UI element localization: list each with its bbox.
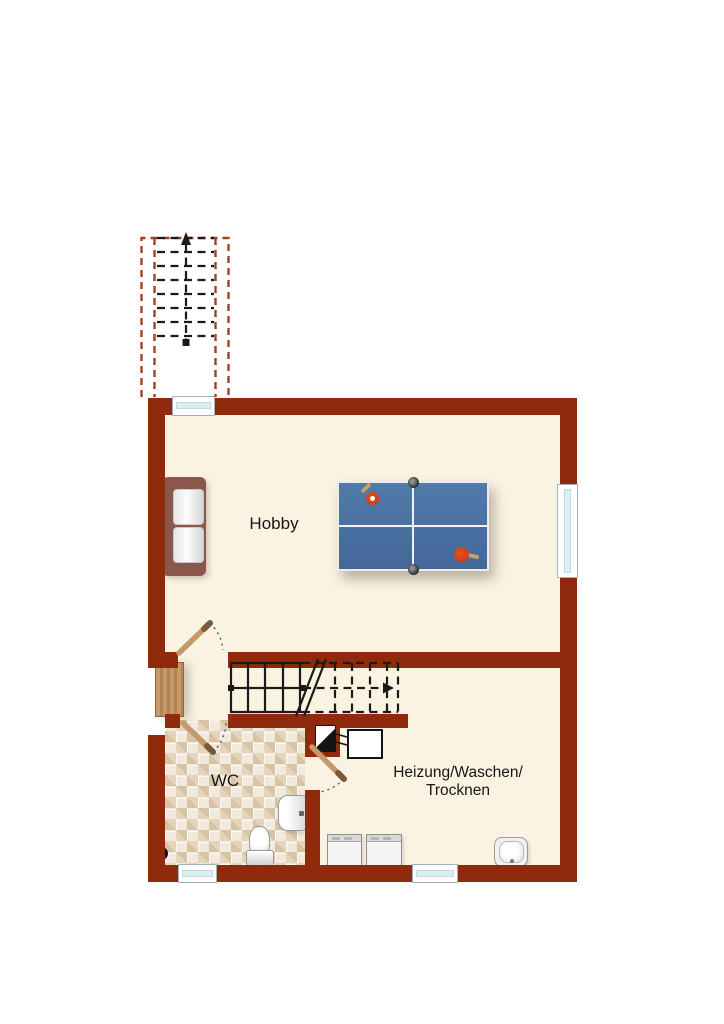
wall-wc-north-stub [165, 714, 180, 728]
window-glass [182, 870, 213, 877]
washer-knob-icon [344, 837, 352, 840]
wall-west-upper [148, 415, 165, 652]
window-glass [416, 870, 454, 877]
wall-west-lower [148, 735, 165, 865]
wc-tiled-floor [165, 720, 305, 865]
heating-boiler [347, 729, 383, 759]
washer-knob-icon [371, 837, 379, 840]
room-label-utility-line2: Trocknen [393, 782, 523, 800]
stair-start-marker [183, 339, 190, 346]
sofa-cushion [173, 527, 204, 563]
ball-icon [370, 496, 375, 501]
stair-up-arrow-icon [181, 232, 191, 245]
wall-east [560, 415, 577, 865]
sofa-cushion [173, 489, 204, 525]
floor-plan-canvas: Hobby WC Heizung/Waschen/ Trocknen [0, 0, 724, 1024]
washer-knob-icon [332, 837, 340, 840]
door-glass [176, 402, 211, 409]
window-utility [412, 864, 458, 883]
cellar-exterior-door [155, 662, 184, 717]
exterior-staircase [142, 232, 229, 397]
washer-control-panel [367, 835, 401, 842]
room-label-wc: WC [211, 771, 239, 791]
washer-knob-icon [383, 837, 391, 840]
utility-sink [494, 837, 528, 867]
paddle-icon [454, 547, 469, 562]
entry-door-north [172, 396, 215, 416]
room-label-hobby: Hobby [249, 514, 298, 534]
wall-west-stub [148, 652, 178, 668]
window-east [557, 484, 578, 578]
chimney-icon [315, 725, 336, 752]
tap-icon [299, 811, 304, 816]
toilet-tank [246, 850, 274, 866]
net-post-icon [408, 477, 419, 488]
net-post-icon [408, 564, 419, 575]
wall-wc-east [305, 790, 320, 865]
sofa [162, 477, 206, 576]
window-glass [564, 489, 571, 573]
room-label-utility: Heizung/Waschen/ Trocknen [393, 764, 523, 800]
washing-machine [366, 834, 402, 866]
room-label-utility-line1: Heizung/Waschen/ [393, 764, 523, 782]
sink-drain-icon [510, 859, 514, 863]
wall-hobby-partition [228, 652, 560, 668]
table-net-line [412, 483, 414, 569]
washer-control-panel [328, 835, 361, 842]
table-tennis-table [337, 481, 489, 571]
window-wc [178, 864, 217, 883]
washing-machine [327, 834, 362, 866]
